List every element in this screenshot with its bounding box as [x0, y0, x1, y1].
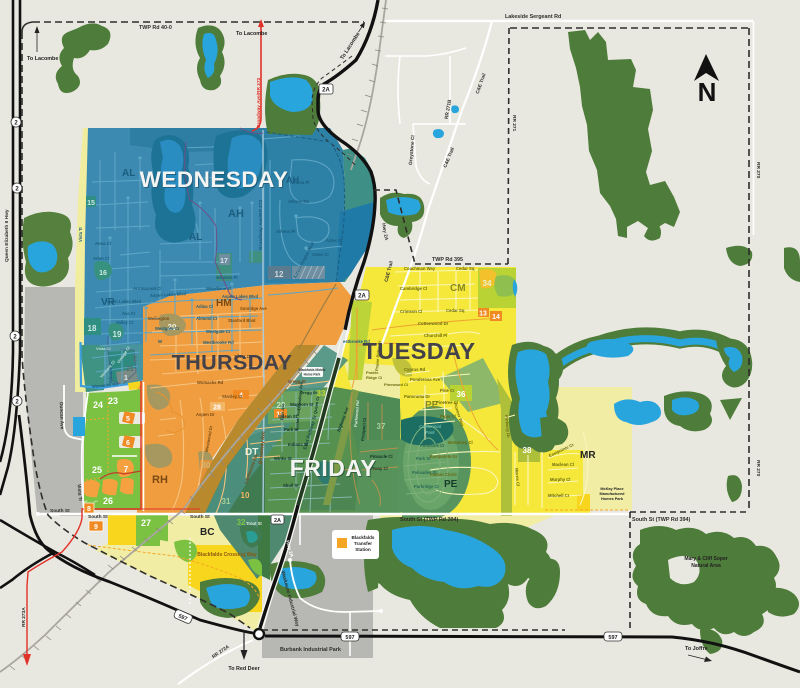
svg-text:28: 28 — [213, 405, 221, 412]
svg-text:THURSDAY: THURSDAY — [172, 351, 293, 375]
svg-text:Sunridge Ave: Sunridge Ave — [240, 306, 267, 311]
svg-text:2: 2 — [133, 356, 137, 363]
svg-text:10: 10 — [241, 491, 250, 500]
svg-text:Westgate Cr: Westgate Cr — [155, 326, 180, 331]
svg-text:19: 19 — [113, 330, 122, 339]
svg-text:Vista Tr: Vista Tr — [78, 227, 83, 242]
svg-text:38: 38 — [523, 446, 532, 455]
svg-text:Park St: Park St — [284, 427, 299, 432]
svg-text:CM: CM — [450, 283, 466, 294]
svg-text:To Red Deer: To Red Deer — [228, 666, 260, 672]
svg-text:24: 24 — [93, 400, 103, 410]
svg-text:Blackfalds Crossing Way: Blackfalds Crossing Way — [197, 552, 257, 558]
svg-text:Mary & Cliff Soper: Mary & Cliff Soper — [684, 556, 727, 562]
svg-text:Home Park: Home Park — [304, 373, 321, 377]
svg-text:RH: RH — [152, 474, 168, 486]
svg-text:8: 8 — [87, 506, 91, 513]
svg-text:AL: AL — [189, 232, 202, 243]
svg-text:Broadway Ave/RR 272: Broadway Ave/RR 272 — [258, 199, 264, 250]
svg-text:30: 30 — [202, 461, 211, 470]
svg-text:Almond Cr: Almond Cr — [196, 316, 218, 321]
svg-text:15: 15 — [87, 200, 95, 207]
svg-text:1: 1 — [124, 375, 128, 382]
svg-text:Cedar Sq: Cedar Sq — [446, 308, 465, 313]
svg-text:Aspen Dr: Aspen Dr — [196, 412, 215, 417]
svg-text:5: 5 — [126, 416, 130, 423]
svg-text:25: 25 — [92, 465, 102, 475]
svg-text:Pinewood Cl: Pinewood Cl — [384, 382, 408, 387]
svg-text:Cedar Sq: Cedar Sq — [456, 266, 475, 271]
svg-text:To Lacombe: To Lacombe — [236, 31, 267, 37]
svg-text:Gregg St: Gregg St — [288, 379, 306, 384]
svg-text:Arlen Cl: Arlen Cl — [93, 256, 109, 261]
svg-text:Wellington: Wellington — [148, 316, 170, 321]
svg-text:Manufactured: Manufactured — [600, 492, 626, 496]
svg-text:9: 9 — [94, 524, 98, 531]
svg-text:RR 273A: RR 273A — [21, 607, 27, 627]
svg-text:TUESDAY: TUESDAY — [363, 338, 476, 364]
svg-text:32: 32 — [237, 518, 246, 527]
svg-text:Piper Cl: Piper Cl — [440, 414, 456, 419]
svg-text:Trout St: Trout St — [246, 521, 262, 526]
svg-text:Natural Area: Natural Area — [691, 563, 721, 569]
svg-text:Centennial: Centennial — [419, 424, 442, 429]
svg-text:2A: 2A — [274, 518, 281, 524]
svg-text:RR 271: RR 271 — [511, 115, 517, 132]
svg-text:2A: 2A — [322, 88, 330, 94]
svg-text:Athens Rd: Athens Rd — [288, 199, 309, 204]
svg-text:Aspen Lakes Blvd: Aspen Lakes Blvd — [222, 294, 259, 299]
svg-text:Burbank Industrial Park: Burbank Industrial Park — [280, 647, 341, 653]
svg-text:RR 270: RR 270 — [755, 460, 761, 477]
svg-text:Duncan Ave: Duncan Ave — [58, 402, 65, 430]
svg-text:Gregg St: Gregg St — [300, 390, 318, 395]
svg-text:2A: 2A — [358, 294, 366, 300]
svg-text:Athena Pl: Athena Pl — [290, 180, 309, 185]
svg-text:Cottonwood Dr: Cottonwood Dr — [418, 321, 449, 326]
svg-text:Westgate Cr: Westgate Cr — [206, 329, 231, 334]
svg-text:27: 27 — [141, 518, 151, 528]
svg-text:N: N — [698, 77, 717, 107]
svg-text:Stanley St: Stanley St — [222, 394, 243, 399]
svg-text:Cyprus Rd: Cyprus Rd — [404, 367, 426, 372]
svg-text:Lakeside Sergeant Rd: Lakeside Sergeant Rd — [505, 14, 561, 20]
svg-text:Transfer: Transfer — [354, 541, 372, 546]
svg-text:Arrowwood Cl: Arrowwood Cl — [133, 286, 161, 291]
svg-text:7: 7 — [124, 465, 129, 474]
svg-text:Aztec Cr: Aztec Cr — [312, 252, 329, 257]
svg-text:Park St: Park St — [416, 456, 431, 461]
svg-text:Palisades St: Palisades St — [412, 470, 437, 475]
svg-text:Panorama Dr: Panorama Dr — [404, 394, 430, 399]
svg-text:14: 14 — [492, 314, 500, 321]
svg-text:⌐: ⌐ — [94, 499, 98, 505]
svg-text:McKay Place: McKay Place — [600, 487, 623, 491]
svg-text:Indiana St: Indiana St — [288, 442, 309, 447]
svg-text:AL: AL — [122, 168, 135, 179]
svg-text:Womacks Rd: Womacks Rd — [197, 380, 224, 385]
svg-text:37: 37 — [377, 422, 386, 431]
svg-text:Vista Cl: Vista Cl — [96, 346, 111, 351]
svg-text:South St: South St — [190, 514, 210, 520]
svg-text:Westbrooke Rd: Westbrooke Rd — [203, 340, 234, 345]
svg-text:WEDNESDAY: WEDNESDAY — [140, 167, 289, 192]
svg-text:Cambridge Cl: Cambridge Cl — [400, 286, 427, 291]
svg-text:Aztec St: Aztec St — [326, 238, 343, 243]
svg-text:Waghorn St: Waghorn St — [290, 402, 314, 407]
svg-text:18: 18 — [88, 324, 97, 333]
svg-text:Blackfalds Middle: Blackfalds Middle — [299, 368, 326, 372]
svg-text:Murphy Cl: Murphy Cl — [550, 477, 570, 482]
svg-text:South St (TWP Rd 394): South St (TWP Rd 394) — [400, 517, 459, 523]
svg-text:Anna Cl: Anna Cl — [95, 241, 111, 246]
svg-text:South St (TWP Rd 394): South St (TWP Rd 394) — [632, 517, 691, 523]
svg-text:McKelvey Cl: McKelvey Cl — [448, 440, 473, 445]
svg-text:Wilson St: Wilson St — [278, 414, 298, 419]
svg-text:Station: Station — [355, 547, 371, 552]
svg-text:Ridge Cl: Ridge Cl — [366, 375, 382, 380]
svg-text:31: 31 — [222, 497, 231, 506]
svg-text:Park: Park — [425, 430, 435, 435]
svg-text:TWP Rd 40-0: TWP Rd 40-0 — [139, 25, 172, 31]
svg-text:17: 17 — [220, 258, 228, 265]
svg-text:Crimson Cl: Crimson Cl — [400, 309, 422, 314]
svg-text:6: 6 — [126, 440, 130, 447]
svg-text:Homes Park: Homes Park — [601, 497, 624, 501]
svg-text:TWP Rd 395: TWP Rd 395 — [432, 257, 463, 263]
svg-text:597: 597 — [608, 635, 617, 641]
svg-text:Shull St: Shull St — [283, 483, 299, 488]
svg-text:Athens Pl: Athens Pl — [276, 229, 295, 234]
svg-text:Parkridge Cr: Parkridge Cr — [414, 484, 440, 489]
svg-text:To Lacombe: To Lacombe — [27, 56, 58, 62]
svg-text:Pondside Cr: Pondside Cr — [420, 443, 445, 448]
svg-text:Valley Cr: Valley Cr — [116, 320, 134, 325]
svg-text:Woodbine Cl: Woodbine Cl — [206, 286, 232, 291]
svg-text:Eastpointe Dr: Eastpointe Dr — [430, 454, 458, 459]
svg-text:16: 16 — [99, 270, 107, 277]
svg-text:MR: MR — [580, 450, 596, 461]
svg-text:Adina Cl: Adina Cl — [196, 304, 213, 309]
svg-text:Ava Cr: Ava Cr — [122, 311, 136, 316]
svg-text:Coachman Way: Coachman Way — [404, 266, 436, 271]
svg-text:BC: BC — [200, 527, 214, 538]
svg-text:HM: HM — [216, 298, 232, 309]
svg-text:Aspen Lakes Blvd: Aspen Lakes Blvd — [105, 299, 142, 304]
svg-text:FRIDAY: FRIDAY — [290, 455, 377, 481]
svg-text:Pine Cr: Pine Cr — [440, 388, 455, 393]
svg-text:Broadway Ave/RR 272: Broadway Ave/RR 272 — [256, 77, 262, 128]
svg-text:Queen Elizabeth II Hwy: Queen Elizabeth II Hwy — [4, 209, 10, 262]
svg-text:597: 597 — [345, 635, 354, 641]
svg-text:Maclean Cl: Maclean Cl — [552, 462, 574, 467]
svg-text:Ponderosa Ave: Ponderosa Ave — [410, 377, 441, 382]
svg-text:RR 270: RR 270 — [755, 162, 761, 179]
svg-text:34: 34 — [483, 279, 492, 288]
svg-text:South St: South St — [50, 508, 70, 514]
svg-text:Blackfalds: Blackfalds — [352, 535, 375, 540]
svg-text:12: 12 — [275, 270, 284, 279]
svg-text:23: 23 — [108, 396, 118, 406]
svg-text:Winston Pl: Winston Pl — [216, 275, 238, 280]
svg-text:26: 26 — [103, 496, 113, 506]
svg-text:Stanford Blvd: Stanford Blvd — [228, 318, 256, 323]
svg-text:South St: South St — [88, 514, 108, 520]
svg-text:To Joffre: To Joffre — [685, 646, 708, 652]
svg-text:PE: PE — [444, 479, 458, 490]
svg-text:21: 21 — [126, 366, 134, 373]
svg-text:Mitchell Cr: Mitchell Cr — [548, 493, 570, 498]
svg-text:13: 13 — [479, 311, 487, 318]
svg-text:AH: AH — [228, 208, 244, 220]
svg-text:36: 36 — [457, 390, 466, 399]
